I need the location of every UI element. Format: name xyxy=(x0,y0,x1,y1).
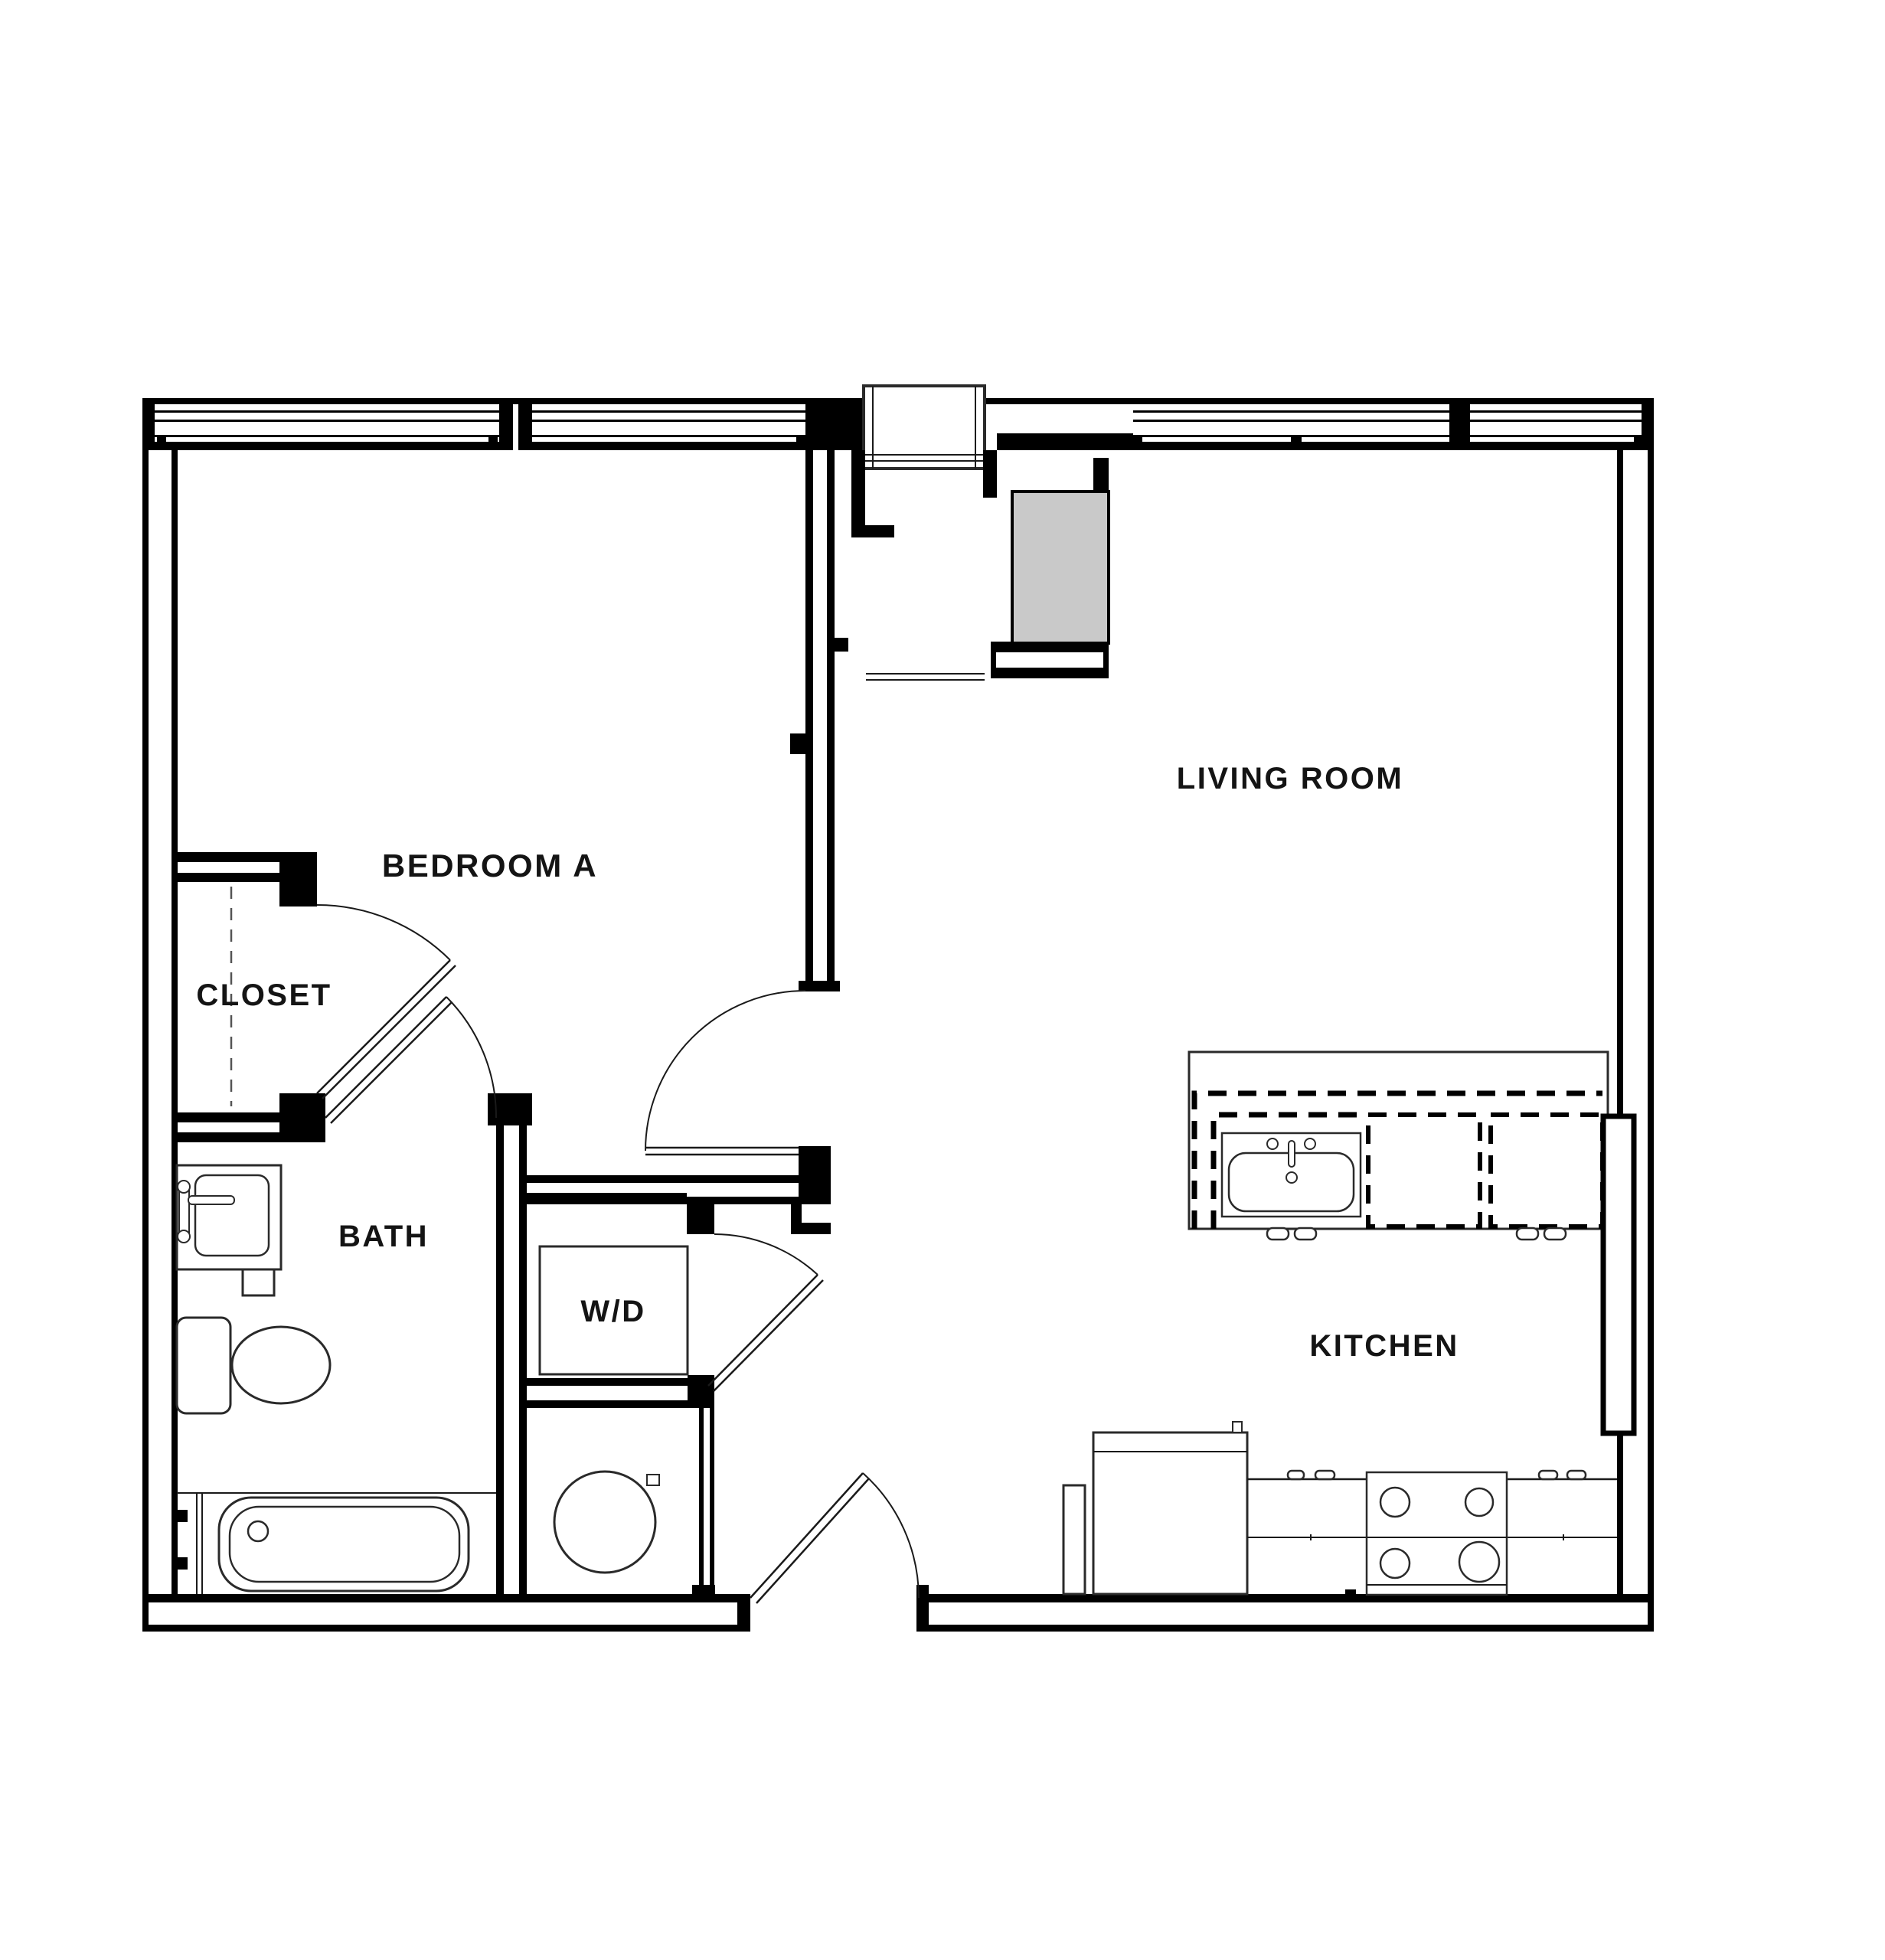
bottom-left-wall-inner-face xyxy=(142,1594,750,1602)
window-mullion-a2 xyxy=(518,398,532,450)
utility-right-wall-face-2 xyxy=(710,1408,714,1594)
bedroom-door xyxy=(645,991,805,1155)
divider-wall-tick-left xyxy=(790,733,805,754)
bottom-left-wall-end-jamb xyxy=(737,1594,750,1632)
closet-bottom-wall-face-2 xyxy=(172,1132,290,1142)
sink-drain xyxy=(1286,1172,1297,1183)
closet-door-swing-arc xyxy=(317,905,450,960)
window-tick-2 xyxy=(488,436,498,450)
water-heater-valve xyxy=(647,1475,659,1485)
vanity-faucet-spout xyxy=(188,1196,234,1204)
room-label-bedroom-a: BEDROOM A xyxy=(382,848,598,884)
room-label-kitchen: KITCHEN xyxy=(1309,1329,1459,1363)
vanity-faucet-handle-top xyxy=(178,1181,190,1193)
bottom-left-wall-outer-face xyxy=(142,1625,750,1632)
bottom-right-wall-outer-face xyxy=(916,1625,1654,1632)
kitchen-sink xyxy=(1222,1133,1361,1217)
patio-door-panel xyxy=(864,386,985,469)
closet-bottom-jamb xyxy=(279,1093,325,1142)
alcove-lower-wall-top-face xyxy=(991,642,1109,652)
toilet xyxy=(177,1318,330,1413)
sink-handle-right xyxy=(1305,1138,1315,1149)
alcove-wall-left-foot xyxy=(851,525,894,537)
living-wall-cabinet xyxy=(1603,1116,1634,1433)
sink-handle-left xyxy=(1267,1138,1278,1149)
utility-top-wall-face-1 xyxy=(527,1378,694,1386)
burner-1 xyxy=(1380,1488,1410,1517)
utility-right-wall-face-1 xyxy=(699,1408,704,1594)
burner-2 xyxy=(1465,1488,1493,1516)
hall-wall xyxy=(519,1146,831,1234)
entry-door-leaf-2 xyxy=(756,1478,869,1603)
closet-door xyxy=(317,905,456,1099)
right-wall-outer xyxy=(1648,398,1654,1632)
top-wall-corner-left xyxy=(142,398,155,450)
alcove-lower-wall-bottom-face xyxy=(991,668,1109,678)
exterior-walls xyxy=(142,398,1654,1632)
window-mullion-a1 xyxy=(499,398,513,450)
counter-tick xyxy=(1345,1589,1356,1594)
floor-plan-page: BEDROOM A LIVING ROOM CLOSET BATH W/D KI… xyxy=(0,0,1885,1960)
range-stove xyxy=(1367,1472,1507,1595)
bottom-right-wall-end-jamb xyxy=(916,1594,929,1632)
closet-top-wall-face-2 xyxy=(172,873,290,882)
alcove-lower-wall-cap-right xyxy=(1103,652,1109,668)
burner-3 xyxy=(1380,1549,1410,1578)
kitchen-island xyxy=(1189,1052,1634,1433)
left-wall-inner xyxy=(172,450,178,1594)
room-label-closet: CLOSET xyxy=(196,978,332,1012)
window-tick-5 xyxy=(1291,436,1302,450)
alcove-wall-left xyxy=(851,450,865,537)
window-tick-6 xyxy=(1634,436,1643,450)
window-mullion-b xyxy=(1449,398,1470,450)
broom-cabinet xyxy=(1063,1485,1085,1594)
window-tick-4 xyxy=(1133,436,1142,450)
top-wall-divider-junction xyxy=(805,398,864,450)
bedroom-door-swing-arc xyxy=(645,991,805,1151)
utility-room xyxy=(527,1378,714,1594)
mechanical-unit xyxy=(1012,492,1109,643)
top-wall-corner-right xyxy=(1642,398,1654,450)
alcove-lower-wall-cap-left xyxy=(991,652,996,668)
wd-top-wall xyxy=(527,1193,687,1200)
closet-bottom-wall-face-1 xyxy=(172,1112,290,1122)
divider-wall-end-casing xyxy=(799,981,840,991)
room-label-wd: W/D xyxy=(580,1295,645,1328)
bathtub xyxy=(177,1493,496,1594)
floor-plan-drawing: BEDROOM A LIVING ROOM CLOSET BATH W/D KI… xyxy=(0,0,1885,1960)
refrigerator-handle xyxy=(1233,1422,1242,1432)
divider-wall-tick-right xyxy=(835,638,848,652)
window-tick-3 xyxy=(796,436,805,450)
burner-4 xyxy=(1459,1542,1499,1582)
toilet-bowl xyxy=(232,1327,330,1403)
washer-dryer-closet xyxy=(527,1193,823,1408)
hall-wall-se-stub-foot xyxy=(791,1223,831,1234)
alcove-wall-right xyxy=(983,450,997,498)
refrigerator xyxy=(1093,1422,1247,1594)
water-heater xyxy=(554,1472,655,1573)
kitchen-counter-run xyxy=(1063,1422,1617,1595)
vanity-faucet-handle-bottom xyxy=(178,1230,190,1243)
wd-strike-jamb xyxy=(687,1197,714,1234)
utility-top-wall-face-2 xyxy=(527,1400,694,1408)
bath xyxy=(177,997,532,1594)
entry-alcove xyxy=(851,386,1109,680)
bottom-right-wall-inner-face xyxy=(916,1594,1654,1602)
wd-door xyxy=(708,1234,823,1391)
tub-wall-tick-2 xyxy=(177,1557,188,1570)
tub-drain xyxy=(248,1521,268,1541)
entry-door-leaf-1 xyxy=(750,1473,863,1598)
hall-wall-right-jamb xyxy=(799,1146,831,1204)
room-label-bath: BATH xyxy=(338,1220,429,1253)
toilet-tank xyxy=(177,1318,230,1413)
tub-inner xyxy=(230,1507,459,1582)
closet-top-wall-face-1 xyxy=(172,852,290,862)
alcove-stub-right xyxy=(1093,458,1109,493)
entry-door-swing-arc xyxy=(863,1473,919,1598)
window-tick-1 xyxy=(157,436,166,450)
bath-east-wall-face-2 xyxy=(519,1093,527,1594)
bathroom-vanity xyxy=(177,1165,281,1295)
sink-faucet-stem xyxy=(1289,1141,1295,1167)
wd-door-swing-arc xyxy=(714,1234,818,1275)
top-wall-solid-right-of-alcove-outer xyxy=(997,398,1133,404)
vanity-sink-bowl xyxy=(195,1175,269,1256)
top-wall-solid-right-of-alcove-inner xyxy=(997,433,1133,450)
tub-wall-tick-1 xyxy=(177,1510,188,1522)
window-segment-4 xyxy=(1470,410,1643,450)
entry-door xyxy=(750,1473,919,1603)
bath-east-wall-face-1 xyxy=(496,1093,504,1594)
left-wall-outer xyxy=(142,398,149,1632)
window-segment-2 xyxy=(532,410,805,450)
bedroom-living-divider-wall xyxy=(790,450,848,991)
closet-top-jamb xyxy=(279,852,317,906)
window-segment-1 xyxy=(153,410,499,450)
vanity-side-box xyxy=(243,1269,274,1295)
room-label-living-room: LIVING ROOM xyxy=(1177,762,1403,795)
